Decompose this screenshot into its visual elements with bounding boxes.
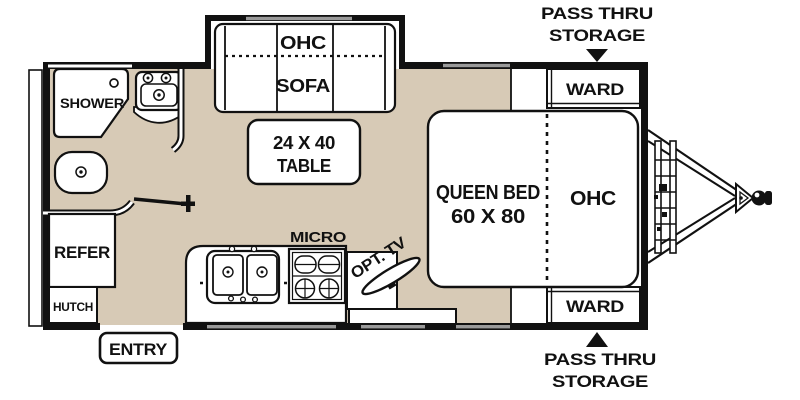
kitchen-faucet-right (251, 246, 256, 251)
pass-thru-top-arrow (586, 49, 608, 62)
lower-shelf (349, 309, 456, 324)
tank-valve-1 (659, 184, 667, 191)
kitchen-faucet-left (229, 246, 234, 251)
sofa-slideout: OHC SOFA (215, 24, 395, 112)
sofa-label: SOFA (276, 76, 330, 96)
pass-thru-top-label-line2: STORAGE (549, 26, 645, 45)
pass-thru-top-label-line1: PASS THRU (541, 4, 653, 23)
tank-valve-3 (654, 195, 658, 199)
bath-faucet-left-dot (147, 77, 150, 80)
rear-bumper (29, 70, 42, 326)
toilet-flush-dot (79, 170, 82, 173)
shower-drain (110, 79, 118, 87)
window-band-top-left (48, 65, 132, 68)
slideout-wall-right (399, 15, 405, 69)
bath-sink-drain-dot (157, 93, 160, 96)
aframe-top-outer (648, 130, 741, 193)
hitch-jack (765, 191, 772, 205)
ward-bottom-label: WARD (566, 297, 624, 316)
window-band-top-right (443, 64, 510, 67)
aframe-bottom-outer (648, 201, 741, 263)
shower-label: SHOWER (60, 95, 124, 111)
entry-label: ENTRY (109, 340, 168, 359)
pass-thru-bottom-label-line2: STORAGE (552, 372, 648, 391)
window-band-bottom-2 (361, 325, 425, 328)
tank-valve-4 (657, 227, 661, 231)
pass-thru-bottom-label-line1: PASS THRU (544, 350, 656, 369)
coupler-pin (739, 196, 743, 200)
refer-label: REFER (54, 243, 110, 262)
table-label: TABLE (277, 156, 331, 176)
pass-thru-bottom-arrow (586, 332, 608, 347)
table-size-label: 24 X 40 (273, 133, 335, 153)
floorplan-canvas: OHC SOFA SHOWER REFER (0, 0, 800, 400)
sink-drain-left-dot (227, 271, 230, 274)
stove (289, 249, 345, 303)
queen-bed-size-label: 60 X 80 (451, 206, 525, 228)
hutch-label: HUTCH (53, 300, 93, 314)
wall-top-right (400, 62, 648, 69)
bath-door-latch-horizontal (181, 202, 195, 207)
queen-bed-label: QUEEN BED (436, 182, 540, 204)
ward-top-label: WARD (566, 80, 624, 99)
tank-rack-rail-right (670, 141, 676, 253)
sofa-ohc-label: OHC (280, 33, 326, 53)
micro-label: MICRO (290, 229, 347, 246)
tank-valve-2 (662, 212, 667, 217)
window-band-slideout (246, 17, 352, 20)
wall-right (641, 62, 648, 330)
hitch-aframe (648, 130, 772, 263)
sink-drain-right-dot (261, 271, 264, 274)
floorplan-svg: OHC SOFA SHOWER REFER (0, 0, 800, 400)
window-band-bottom-3 (456, 325, 510, 328)
hitch-ball (752, 191, 767, 206)
bath-faucet-right-dot (165, 77, 168, 80)
coupler-housing (736, 184, 753, 212)
hitch-ball-highlight (755, 193, 760, 198)
window-band-bottom-1 (207, 325, 336, 328)
bed-ohc-label: OHC (570, 188, 616, 210)
dinette: 24 X 40 TABLE (248, 120, 360, 184)
wall-bottom-left-of-entry (43, 323, 100, 330)
slideout-wall-left (205, 15, 211, 69)
